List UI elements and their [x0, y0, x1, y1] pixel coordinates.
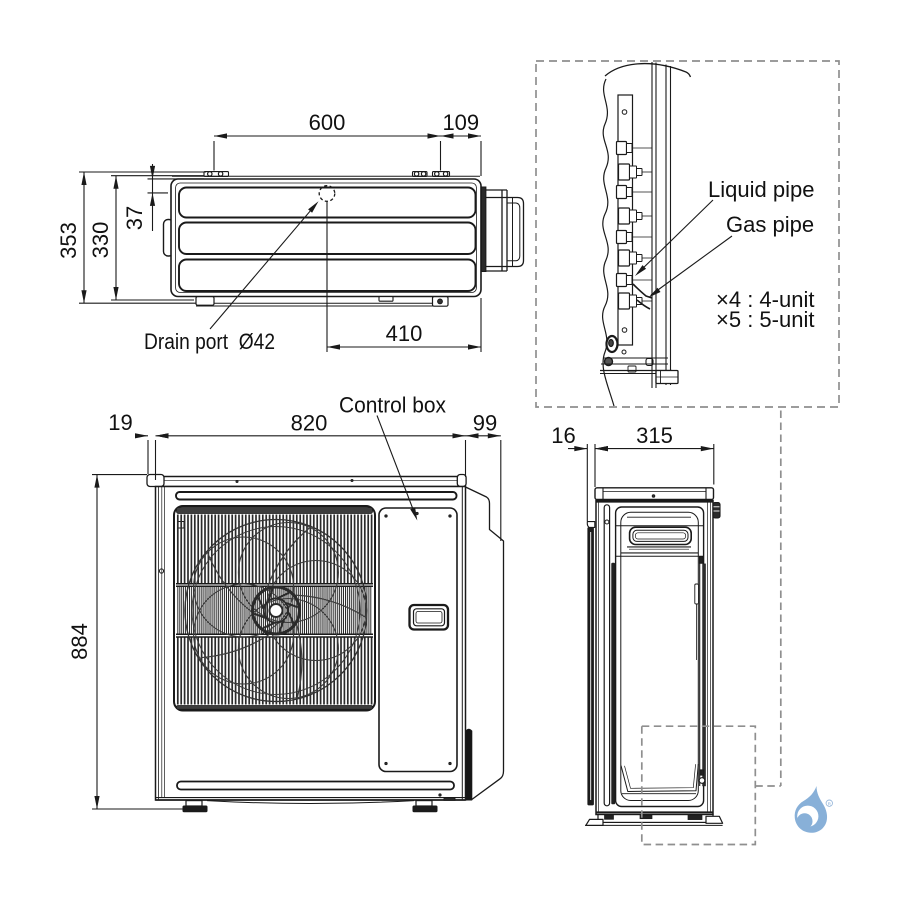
svg-text:109: 109 [442, 110, 479, 135]
svg-text:37: 37 [122, 206, 147, 230]
svg-text:×5 : 5-unit: ×5 : 5-unit [716, 307, 814, 332]
svg-text:410: 410 [386, 321, 423, 346]
svg-text:99: 99 [473, 411, 497, 436]
svg-text:Liquid pipe: Liquid pipe [708, 177, 814, 202]
svg-text:Drain port Ø42: Drain port Ø42 [144, 329, 275, 354]
svg-text:330: 330 [88, 222, 113, 259]
svg-text:884: 884 [67, 623, 92, 660]
svg-text:19: 19 [108, 410, 132, 435]
svg-text:315: 315 [636, 423, 673, 448]
svg-text:Gas pipe: Gas pipe [726, 212, 814, 237]
svg-text:600: 600 [309, 110, 346, 135]
svg-text:16: 16 [551, 423, 575, 448]
svg-text:353: 353 [56, 222, 81, 259]
svg-text:820: 820 [291, 411, 328, 436]
svg-text:Control box: Control box [339, 393, 446, 418]
